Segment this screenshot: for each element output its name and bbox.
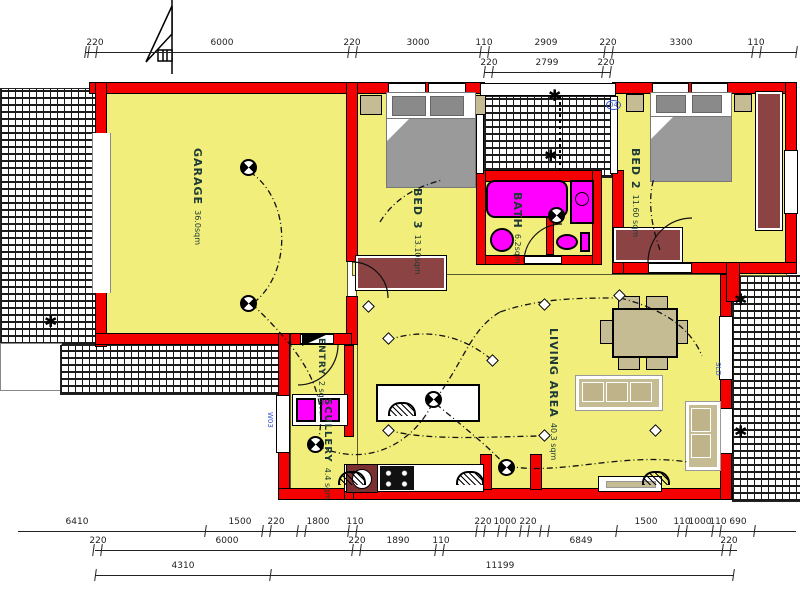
light-icon (240, 295, 257, 312)
shrub-icon: ✱ (548, 89, 561, 103)
floor-plan-canvas: GARAGE 36.0sqm BED 3 13.10sqm BATH 6.2sq… (0, 0, 800, 600)
light-icon (240, 159, 257, 176)
vent-icon (388, 402, 416, 416)
shrub-icon: ✱ (734, 293, 747, 307)
switch-icon (382, 424, 395, 437)
light-icon (307, 436, 324, 453)
switch-icon (538, 298, 551, 311)
shrub-icon: ✱ (734, 425, 747, 439)
vent-icon (338, 471, 366, 485)
switch-icon (649, 424, 662, 437)
vent-icon (642, 471, 670, 485)
switch-icon (613, 289, 626, 302)
light-icon (548, 207, 565, 224)
switch-icon (538, 429, 551, 442)
vent-icon (456, 471, 484, 485)
light-icon (425, 391, 442, 408)
light-icon (498, 459, 515, 476)
switch-icon (486, 354, 499, 367)
switch-icon (382, 332, 395, 345)
shrub-icon: ✱ (44, 315, 57, 329)
switch-icon (362, 300, 375, 313)
symbol-layer: ✱✱✱✱✱ (0, 0, 800, 600)
shrub-icon: ✱ (544, 149, 557, 163)
